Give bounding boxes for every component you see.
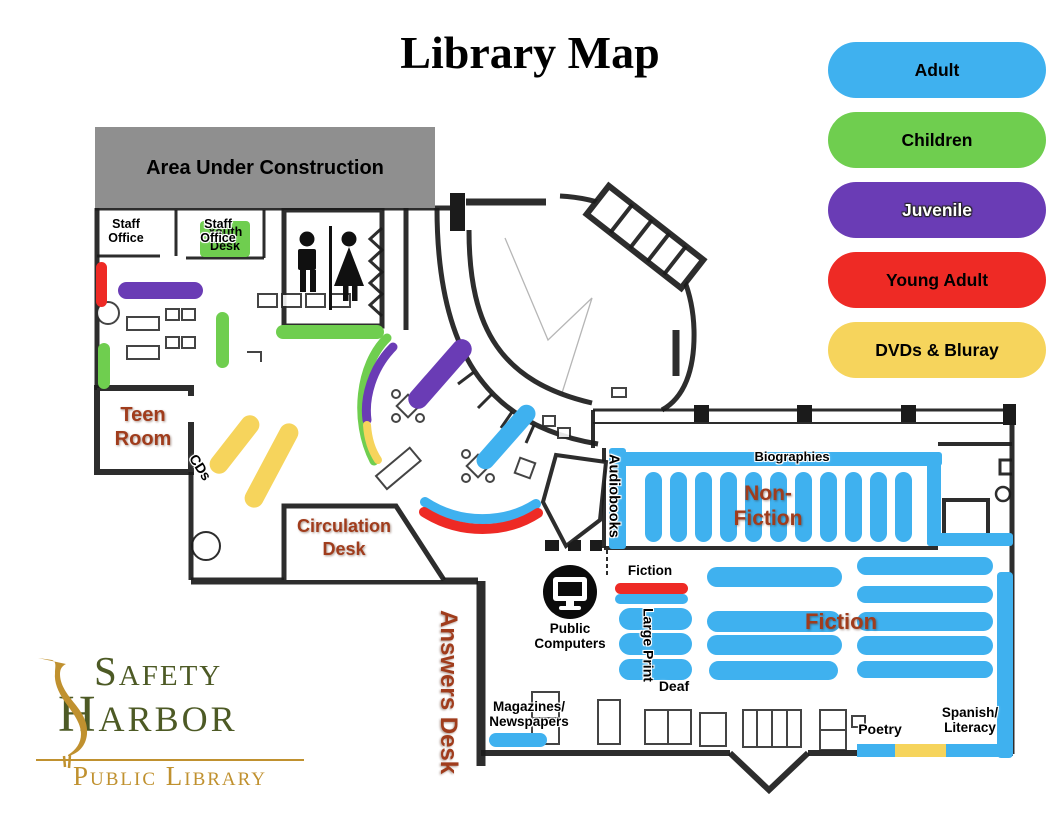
dvd-shelf-bar	[894, 744, 946, 757]
nonfiction-shelf-bar	[845, 472, 862, 542]
staff-office-label: Staff Office	[94, 218, 158, 245]
children-shelf-bar	[98, 343, 110, 389]
poetry-label: Poetry	[850, 722, 910, 737]
fiction-section-label: Fiction	[620, 564, 680, 579]
children-shelf-bar	[276, 325, 384, 339]
nonfiction-bottom-bar	[927, 533, 1013, 546]
non-fiction-label: Non- Fiction	[710, 481, 826, 531]
children-shelf-bar	[216, 312, 229, 368]
fiction-shelf-bar	[857, 636, 993, 655]
female-restroom-icon	[342, 232, 357, 247]
magazines-line2: Newspapers	[477, 715, 581, 730]
teen-room-label: Teen Room	[100, 403, 186, 451]
legend-item-juvenile: Juvenile	[828, 182, 1046, 238]
spanish-literacy-label: Spanish/ Literacy	[933, 706, 1007, 735]
fiction-shelf-bar	[707, 635, 842, 655]
young-adult-shelf-bar	[96, 262, 107, 307]
audiobooks-label: Audiobooks	[605, 454, 621, 538]
legend-label: Juvenile	[902, 200, 972, 221]
nonfiction-right-bar	[927, 452, 941, 546]
stair-block	[587, 186, 704, 288]
staff-office-label: Staff Office	[186, 218, 250, 245]
fiction-shelf-bar	[709, 661, 838, 680]
juvenile-shelf-bar	[118, 282, 203, 299]
spanish-line2: Literacy	[933, 721, 1007, 736]
magazines-label: Magazines/ Newspapers	[477, 700, 581, 729]
nonfiction-shelf-bar	[895, 472, 912, 542]
nonfiction-shelf-bar	[870, 472, 887, 542]
legend: Adult Children Juvenile Young Adult DVDs…	[828, 42, 1046, 378]
legend-item-children: Children	[828, 112, 1046, 168]
library-map-page: Area Under Construction Youth Desk	[0, 0, 1056, 816]
spanish-line1: Spanish/	[933, 706, 1007, 721]
male-restroom-icon	[300, 232, 315, 247]
non-fiction-line2: Fiction	[710, 506, 826, 531]
legend-item-dvds-bluray: DVDs & Bluray	[828, 322, 1046, 378]
construction-label: Area Under Construction	[140, 155, 390, 181]
legend-label: Children	[902, 130, 973, 151]
nonfiction-shelf-bar	[645, 472, 662, 542]
legend-label: DVDs & Bluray	[875, 340, 999, 361]
fiction-shelf-bar	[615, 594, 688, 604]
legend-label: Adult	[915, 60, 960, 81]
biographies-label: Biographies	[740, 450, 844, 464]
fiction-shelf-bar	[857, 557, 993, 575]
restroom-divider	[329, 226, 332, 310]
large-print-label: Large Print	[640, 607, 655, 683]
poetry-bar	[857, 744, 895, 757]
circulation-desk-label: Circulation Desk	[282, 515, 406, 560]
nonfiction-shelf-bar	[670, 472, 687, 542]
answers-desk-label: Answers Desk	[435, 610, 461, 774]
library-logo: Safety Harbor Public Library	[30, 645, 315, 805]
legend-item-adult: Adult	[828, 42, 1046, 98]
fiction-shelf-bar	[707, 567, 842, 587]
legend-label: Young Adult	[886, 270, 988, 291]
public-computers-label: Public Computers	[518, 622, 622, 651]
magazines-line1: Magazines/	[477, 700, 581, 715]
legend-item-young-adult: Young Adult	[828, 252, 1046, 308]
area-under-construction: Area Under Construction	[95, 127, 435, 208]
page-title: Library Map	[280, 26, 780, 79]
magazines-bar	[489, 733, 547, 747]
fiction-shelf-bar	[857, 586, 993, 603]
spanish-literacy-bar	[946, 744, 1000, 757]
young-adult-fiction-bar	[615, 583, 688, 594]
heron-icon	[36, 649, 106, 769]
non-fiction-line1: Non-	[710, 481, 826, 506]
public-computers-icon	[543, 565, 597, 619]
fiction-shelf-bar	[857, 661, 993, 678]
deaf-label: Deaf	[652, 679, 696, 694]
fiction-room-label: Fiction	[786, 610, 896, 634]
